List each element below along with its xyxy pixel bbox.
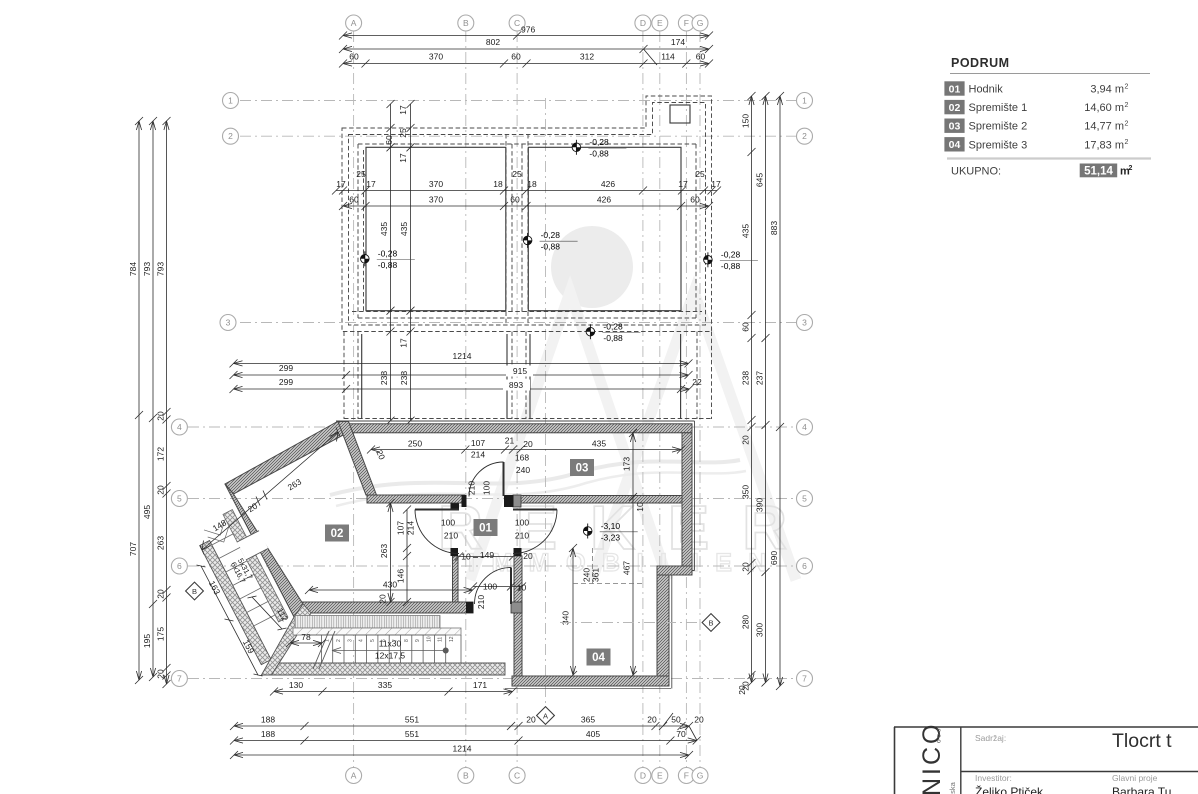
- svg-text:10: 10: [517, 583, 527, 593]
- svg-text:300: 300: [755, 623, 765, 637]
- svg-text:10: 10: [635, 502, 645, 512]
- svg-text:51,14: 51,14: [1084, 165, 1113, 177]
- svg-text:2: 2: [802, 131, 807, 141]
- svg-text:8: 8: [404, 639, 410, 642]
- svg-text:107: 107: [471, 438, 485, 448]
- svg-text:D: D: [640, 771, 646, 781]
- svg-text:280: 280: [741, 615, 751, 629]
- svg-text:A: A: [351, 18, 357, 28]
- svg-text:Investitor:: Investitor:: [975, 773, 1012, 783]
- svg-text:14,77 m: 14,77 m: [1084, 121, 1124, 133]
- svg-text:20: 20: [523, 439, 533, 449]
- svg-text:25: 25: [356, 169, 366, 179]
- svg-text:25: 25: [695, 169, 705, 179]
- svg-text:50: 50: [671, 715, 681, 725]
- svg-text:5: 5: [802, 494, 807, 504]
- svg-text:-0,88: -0,88: [721, 261, 741, 271]
- svg-text:D: D: [640, 18, 646, 28]
- svg-text:04: 04: [592, 652, 605, 664]
- svg-text:238: 238: [399, 371, 409, 385]
- svg-text:690: 690: [769, 551, 779, 565]
- svg-text:7: 7: [802, 674, 807, 684]
- svg-text:883: 883: [769, 221, 779, 235]
- svg-text:17: 17: [398, 153, 408, 163]
- svg-text:430: 430: [383, 580, 397, 590]
- svg-text:PODRUM: PODRUM: [951, 56, 1010, 70]
- svg-text:-0,88: -0,88: [378, 260, 398, 270]
- svg-text:10: 10: [461, 552, 471, 562]
- svg-text:210: 210: [515, 531, 529, 541]
- svg-text:114: 114: [661, 52, 675, 62]
- svg-text:299: 299: [279, 377, 293, 387]
- svg-text:210: 210: [476, 595, 486, 609]
- svg-text:1214: 1214: [453, 351, 472, 361]
- svg-text:20: 20: [737, 685, 747, 695]
- svg-text:20: 20: [156, 411, 166, 421]
- svg-text:Sadržaj:: Sadržaj:: [975, 733, 1006, 743]
- svg-text:E: E: [657, 18, 663, 28]
- svg-text:-3,23: -3,23: [601, 532, 621, 542]
- svg-text:100: 100: [483, 582, 497, 592]
- svg-text:214: 214: [471, 450, 485, 460]
- svg-text:250: 250: [408, 439, 422, 449]
- svg-text:130: 130: [289, 680, 303, 690]
- svg-text:390: 390: [755, 498, 765, 512]
- svg-text:173: 173: [622, 457, 632, 471]
- svg-text:188: 188: [261, 729, 275, 739]
- svg-text:426: 426: [597, 195, 611, 205]
- svg-text:551: 551: [405, 729, 419, 739]
- svg-text:350: 350: [741, 485, 751, 499]
- svg-text:22: 22: [692, 377, 702, 387]
- svg-text:Spremište 2: Spremište 2: [969, 121, 1028, 133]
- svg-text:F: F: [684, 771, 689, 781]
- svg-text:Hodnik: Hodnik: [969, 84, 1004, 96]
- svg-text:10: 10: [426, 636, 432, 642]
- svg-text:1214: 1214: [453, 744, 472, 754]
- svg-text:02: 02: [331, 528, 344, 540]
- svg-text:2: 2: [1125, 83, 1129, 90]
- svg-text:6: 6: [177, 561, 182, 571]
- svg-text:645: 645: [755, 173, 765, 187]
- svg-text:20: 20: [156, 589, 166, 599]
- svg-text:551: 551: [405, 715, 419, 725]
- svg-text:20: 20: [378, 594, 388, 604]
- svg-text:174: 174: [671, 37, 685, 47]
- svg-text:5: 5: [370, 639, 376, 642]
- svg-text:B: B: [708, 618, 713, 627]
- svg-text:20: 20: [647, 715, 657, 725]
- svg-text:3,94 m: 3,94 m: [1090, 84, 1124, 96]
- svg-text:312: 312: [580, 52, 594, 62]
- svg-text:60: 60: [384, 135, 394, 145]
- svg-text:361: 361: [591, 568, 601, 582]
- svg-text:17: 17: [711, 179, 721, 189]
- svg-text:784: 784: [128, 262, 138, 276]
- svg-text:2: 2: [1125, 139, 1129, 146]
- svg-text:12: 12: [449, 636, 455, 642]
- svg-text:18: 18: [527, 179, 537, 189]
- svg-text:01: 01: [479, 523, 492, 535]
- svg-text:Spremište 1: Spremište 1: [969, 102, 1028, 114]
- svg-text:370: 370: [429, 195, 443, 205]
- svg-text:tska: tska: [948, 781, 957, 794]
- svg-text:299: 299: [279, 363, 293, 373]
- svg-text:14,60 m: 14,60 m: [1084, 102, 1124, 114]
- svg-text:-0,28: -0,28: [541, 230, 561, 240]
- svg-text:976: 976: [521, 25, 535, 35]
- svg-text:4: 4: [802, 422, 807, 432]
- svg-text:107: 107: [396, 521, 406, 535]
- svg-text:02: 02: [949, 102, 961, 114]
- svg-text:60: 60: [510, 195, 520, 205]
- svg-text:4: 4: [359, 639, 365, 642]
- svg-text:C: C: [514, 771, 520, 781]
- svg-text:Barbara Tu: Barbara Tu: [1112, 785, 1171, 794]
- svg-text:4: 4: [177, 422, 182, 432]
- svg-text:60: 60: [696, 52, 706, 62]
- svg-text:25: 25: [398, 128, 408, 138]
- svg-text:20: 20: [694, 715, 704, 725]
- svg-text:210: 210: [467, 481, 477, 495]
- svg-text:78: 78: [301, 632, 311, 642]
- svg-text:17: 17: [366, 179, 376, 189]
- svg-text:-0,28: -0,28: [721, 250, 741, 260]
- svg-text:Tlocrt t: Tlocrt t: [1112, 730, 1172, 752]
- svg-text:100: 100: [441, 518, 455, 528]
- svg-text:01: 01: [949, 83, 961, 95]
- svg-text:B: B: [463, 18, 469, 28]
- svg-text:20: 20: [741, 562, 751, 572]
- svg-text:03: 03: [576, 463, 589, 475]
- svg-text:17: 17: [678, 179, 688, 189]
- svg-text:3: 3: [802, 318, 807, 328]
- svg-text:802: 802: [486, 37, 500, 47]
- svg-text:04: 04: [949, 139, 961, 151]
- svg-text:149: 149: [480, 550, 494, 560]
- svg-text:426: 426: [601, 179, 615, 189]
- svg-text:237: 237: [755, 371, 765, 385]
- svg-text:175: 175: [156, 627, 166, 641]
- svg-text:11: 11: [438, 637, 444, 642]
- svg-text:435: 435: [379, 222, 389, 236]
- svg-text:915: 915: [513, 366, 527, 376]
- svg-text:Glavni proje: Glavni proje: [1112, 773, 1158, 783]
- svg-text:9: 9: [415, 639, 421, 642]
- svg-text:6: 6: [802, 561, 807, 571]
- svg-text:B: B: [463, 771, 469, 781]
- svg-text:3: 3: [347, 639, 353, 642]
- svg-text:240: 240: [516, 465, 530, 475]
- svg-text:20: 20: [156, 485, 166, 495]
- svg-text:12x17,5: 12x17,5: [375, 651, 406, 661]
- svg-text:F: F: [684, 18, 689, 28]
- svg-text:1: 1: [228, 96, 233, 106]
- svg-text:20: 20: [523, 551, 533, 561]
- svg-text:-0,88: -0,88: [603, 333, 623, 343]
- svg-text:171: 171: [473, 680, 487, 690]
- svg-text:o o o: o o o: [936, 728, 943, 743]
- svg-text:2: 2: [336, 639, 342, 642]
- svg-text:20: 20: [156, 669, 166, 679]
- svg-text:-3,10: -3,10: [601, 521, 621, 531]
- svg-text:210: 210: [444, 531, 458, 541]
- svg-text:25: 25: [512, 169, 522, 179]
- svg-text:2: 2: [1129, 165, 1133, 172]
- svg-text:17: 17: [398, 105, 408, 115]
- svg-text:-0,88: -0,88: [541, 242, 561, 252]
- svg-text:A: A: [543, 711, 548, 720]
- svg-text:G: G: [697, 18, 704, 28]
- svg-text:435: 435: [741, 224, 751, 238]
- svg-text:370: 370: [429, 52, 443, 62]
- svg-text:5: 5: [177, 494, 182, 504]
- svg-text:195: 195: [142, 634, 152, 648]
- svg-text:60: 60: [690, 195, 700, 205]
- svg-text:467: 467: [622, 561, 632, 575]
- svg-text:17,83 m: 17,83 m: [1084, 139, 1124, 151]
- svg-text:435: 435: [592, 439, 606, 449]
- svg-text:11x30: 11x30: [379, 639, 402, 649]
- svg-text:100: 100: [482, 481, 492, 495]
- svg-text:2: 2: [1125, 121, 1129, 128]
- svg-text:707: 707: [128, 542, 138, 556]
- svg-text:60: 60: [349, 195, 359, 205]
- svg-text:-0,28: -0,28: [378, 249, 398, 259]
- svg-text:214: 214: [406, 521, 416, 535]
- svg-text:365: 365: [581, 715, 595, 725]
- svg-text:18: 18: [493, 179, 503, 189]
- svg-text:21: 21: [505, 436, 515, 446]
- svg-text:1: 1: [802, 96, 807, 106]
- svg-text:-0,88: -0,88: [589, 149, 609, 159]
- svg-text:A: A: [351, 771, 357, 781]
- svg-text:7: 7: [177, 674, 182, 684]
- svg-text:150: 150: [741, 114, 751, 128]
- svg-text:20: 20: [526, 715, 536, 725]
- svg-text:G: G: [697, 771, 704, 781]
- svg-text:60: 60: [349, 52, 359, 62]
- svg-text:Spremište 3: Spremište 3: [969, 139, 1028, 151]
- svg-text:100: 100: [515, 518, 529, 528]
- svg-text:263: 263: [379, 544, 389, 558]
- svg-text:335: 335: [378, 680, 392, 690]
- svg-text:C: C: [514, 18, 520, 28]
- svg-text:435: 435: [399, 222, 409, 236]
- svg-text:70: 70: [676, 729, 686, 739]
- svg-text:3: 3: [226, 318, 231, 328]
- svg-text:168: 168: [515, 453, 529, 463]
- svg-text:2: 2: [228, 131, 233, 141]
- svg-text:-0,28: -0,28: [603, 322, 623, 332]
- svg-text:188: 188: [261, 715, 275, 725]
- svg-text:Željko Ptiček: Željko Ptiček: [975, 784, 1044, 794]
- svg-text:UKUPNO:: UKUPNO:: [951, 166, 1001, 178]
- svg-text:405: 405: [586, 729, 600, 739]
- svg-text:893: 893: [509, 380, 523, 390]
- svg-text:2: 2: [1125, 102, 1129, 109]
- svg-text:370: 370: [429, 179, 443, 189]
- svg-text:17: 17: [399, 338, 409, 348]
- svg-text:60: 60: [511, 52, 521, 62]
- svg-text:793: 793: [142, 262, 152, 276]
- svg-text:793: 793: [156, 262, 166, 276]
- svg-text:20: 20: [741, 435, 751, 445]
- svg-text:238: 238: [379, 371, 389, 385]
- svg-text:-0,28: -0,28: [589, 137, 609, 147]
- svg-text:263: 263: [156, 536, 166, 550]
- svg-text:238: 238: [741, 371, 751, 385]
- svg-text:495: 495: [142, 505, 152, 519]
- svg-text:60: 60: [741, 322, 751, 332]
- svg-text:17: 17: [336, 179, 346, 189]
- svg-text:B: B: [192, 587, 197, 596]
- svg-text:03: 03: [949, 121, 961, 133]
- svg-text:E: E: [657, 771, 663, 781]
- svg-text:172: 172: [156, 447, 166, 461]
